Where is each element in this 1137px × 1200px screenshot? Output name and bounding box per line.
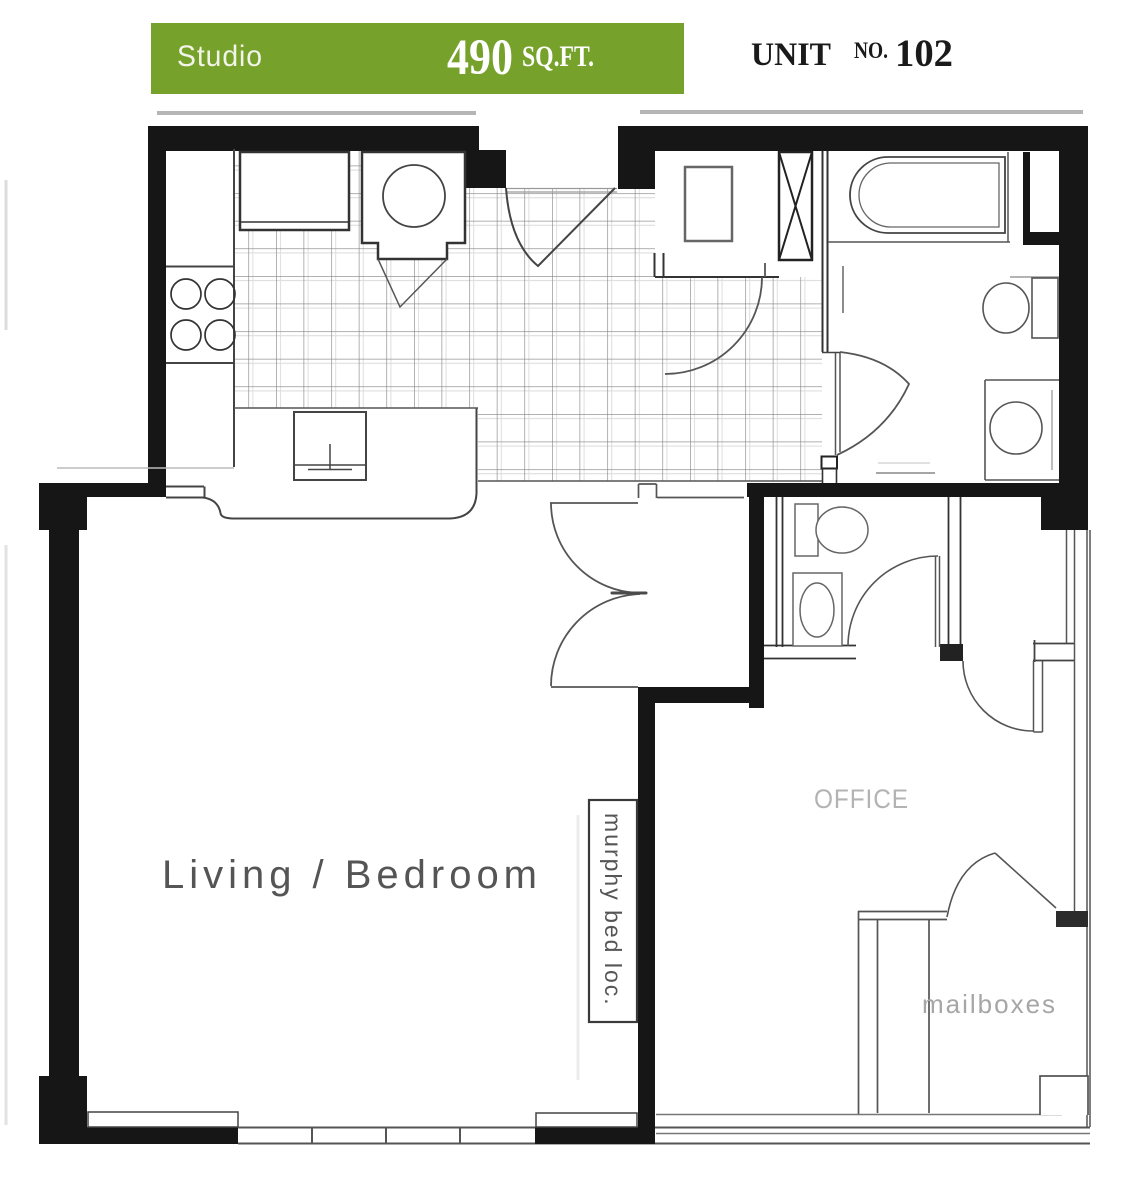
svg-text:102: 102: [895, 32, 953, 75]
svg-text:NO.: NO.: [854, 38, 888, 63]
svg-text:mailboxes: mailboxes: [922, 989, 1057, 1019]
svg-text:OFFICE: OFFICE: [814, 784, 909, 814]
svg-text:Living / Bedroom: Living / Bedroom: [162, 853, 540, 897]
svg-text:490: 490: [447, 30, 513, 86]
svg-text:SQ.FT.: SQ.FT.: [522, 40, 594, 73]
svg-text:UNIT: UNIT: [751, 37, 831, 73]
svg-text:Studio: Studio: [177, 40, 263, 73]
svg-text:murphy bed loc.: murphy bed loc.: [600, 813, 626, 1007]
